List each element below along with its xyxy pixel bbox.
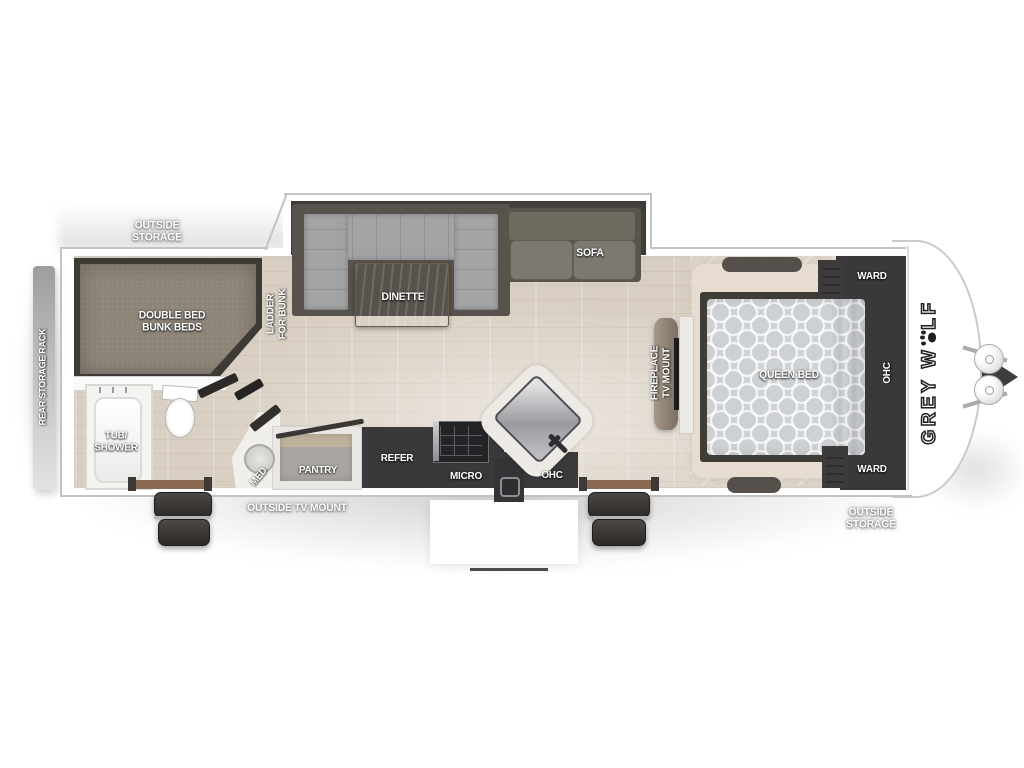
entry-steps-main-rail — [588, 516, 648, 519]
cooktop-steel-strip — [433, 421, 439, 461]
tv-screen-line — [674, 338, 679, 410]
wall-edge-top-bedroom — [650, 247, 906, 249]
propane-tank-bottom-valve — [985, 386, 994, 395]
ward-top-label: WARD — [857, 271, 886, 283]
micro-label: MICRO — [450, 471, 482, 483]
corner-shelf-bottom-slats — [826, 451, 844, 483]
corner-shelf-top-slats — [822, 264, 840, 294]
ohc-kitchen-label: OHC — [541, 470, 562, 482]
bedroom-bench-top — [722, 257, 802, 272]
outside-tv-mount-label: OUTSIDE TV MOUNT — [247, 502, 347, 514]
dinette-bench-left — [304, 214, 348, 310]
dinette-bench-right — [454, 214, 498, 310]
wall-edge-left — [60, 247, 62, 497]
ohc-bedroom-label: OHC — [882, 362, 894, 383]
front-cap-seam — [907, 246, 909, 490]
tub-shower-label: TUB/ SHOWER — [94, 430, 137, 454]
fireplace-tv-label: FIREPLACE TV MOUNT — [649, 346, 673, 400]
sofa-seat-left — [510, 240, 573, 280]
toilet-bowl — [165, 398, 195, 438]
outside-storage-rear-label: OUTSIDE STORAGE — [132, 220, 182, 245]
dinette-label: DINETTE — [382, 291, 425, 303]
ward-bottom-label: WARD — [857, 464, 886, 476]
pantry-label: PANTRY — [299, 465, 337, 477]
entry-steps-main-lower — [592, 519, 646, 546]
entry-door-main-threshold — [584, 480, 658, 489]
tv-mount-strip — [679, 316, 694, 434]
tub-faucet — [99, 387, 135, 393]
refer-label: REFER — [381, 453, 414, 465]
brand-suffix: LF — [919, 300, 940, 330]
entry-steps-rear-lower — [158, 519, 210, 546]
sofa-back — [509, 212, 635, 240]
furnace-vent-inner — [500, 477, 520, 497]
wall-edge-top-slideout — [284, 193, 652, 195]
exterior-marker-line — [470, 568, 548, 571]
floorplan-scene: REAR STORAGE RACK DOUBLE BED BUNK BEDS L… — [0, 0, 1024, 768]
entry-steps-rear-upper — [154, 492, 212, 518]
queen-bed-label: QUEEN BED — [759, 369, 819, 381]
brand-logo: GREY WLF — [919, 300, 941, 445]
entry-door-rear-jamb-left — [128, 477, 136, 491]
bedroom-bench-bottom — [727, 477, 781, 493]
wall-edge-slideout-right — [650, 194, 652, 249]
propane-tank-top-valve — [985, 355, 994, 364]
sofa-label: SOFA — [576, 247, 603, 259]
entry-door-main-jamb-right — [651, 477, 659, 491]
entry-door-rear-threshold — [133, 480, 211, 489]
rear-storage-rack-label: REAR STORAGE RACK — [39, 329, 50, 426]
brand-prefix: GREY W — [919, 347, 940, 445]
paw-print-icon — [921, 331, 936, 346]
entry-steps-main-upper — [588, 492, 650, 518]
entry-door-main-jamb-left — [579, 477, 587, 491]
cooktop-grate — [440, 426, 482, 456]
wall-edge-top-rear — [60, 247, 268, 249]
entry-steps-rear-rail — [154, 516, 210, 519]
bunk-label: DOUBLE BED BUNK BEDS — [139, 310, 205, 335]
exterior-marker — [430, 500, 578, 564]
outside-storage-front-label: OUTSIDE STORAGE — [846, 507, 896, 532]
ladder-label: LADDER FOR BUNK — [265, 289, 289, 340]
entry-door-rear-jamb-right — [204, 477, 212, 491]
